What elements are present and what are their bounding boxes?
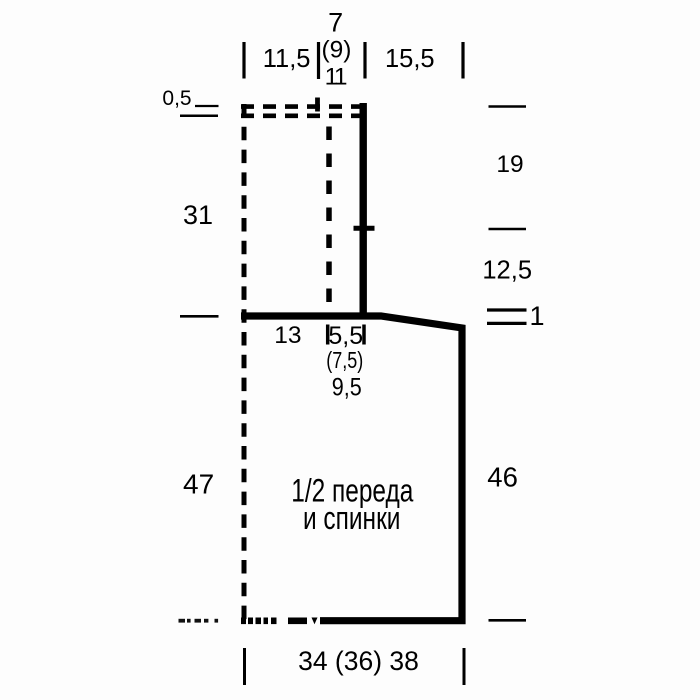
svg-text:11,5: 11,5	[263, 45, 311, 73]
svg-text:и спинки: и спинки	[303, 500, 401, 536]
svg-text:34 (36) 38: 34 (36) 38	[298, 646, 419, 676]
svg-text:1: 1	[529, 301, 544, 331]
svg-text:7: 7	[328, 8, 343, 38]
svg-text:12,5: 12,5	[482, 257, 532, 285]
svg-text:13: 13	[274, 322, 301, 349]
svg-text:15,5: 15,5	[385, 45, 435, 73]
svg-text:11: 11	[325, 64, 347, 91]
svg-text:(9): (9)	[322, 37, 352, 64]
svg-text:19: 19	[496, 151, 523, 178]
svg-text:5,5: 5,5	[328, 322, 363, 350]
svg-text:9,5: 9,5	[332, 374, 362, 402]
svg-text:0,5: 0,5	[162, 87, 191, 110]
svg-text:47: 47	[183, 469, 214, 500]
svg-text:(7,5): (7,5)	[326, 347, 363, 373]
svg-text:46: 46	[487, 462, 518, 493]
svg-text:31: 31	[183, 200, 213, 230]
